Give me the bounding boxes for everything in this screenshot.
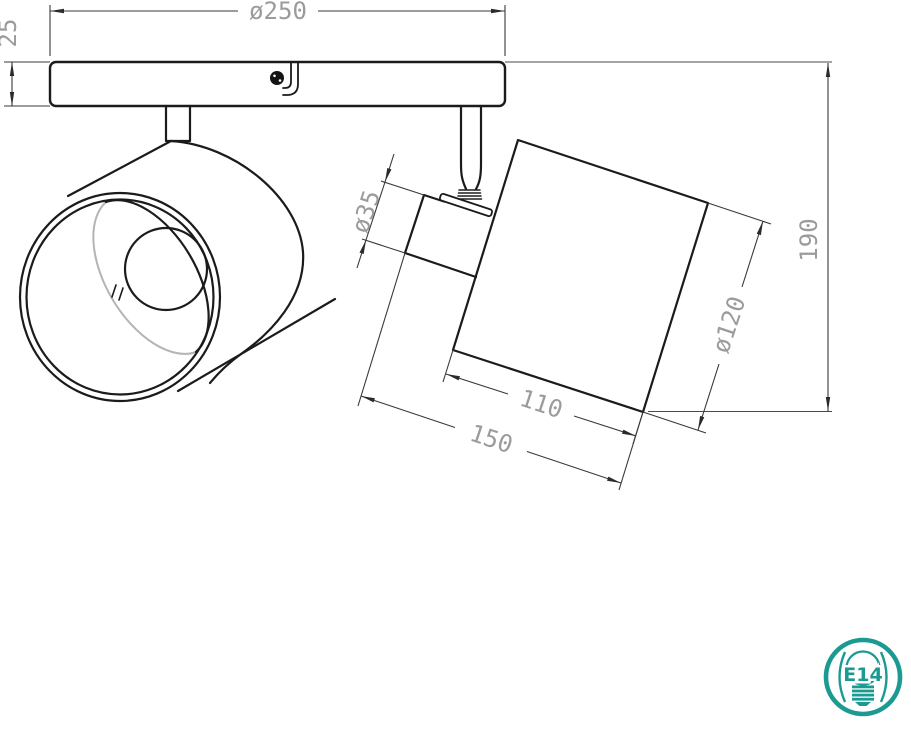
- dim-label-shade-length: 110: [516, 384, 566, 424]
- dim-label-neck-diameter: ø35: [346, 187, 386, 237]
- dim-label-head-length: 150: [466, 419, 516, 459]
- left-shade-top-silhouette: [68, 141, 171, 196]
- dim-plate-diameter: ø250: [50, 0, 505, 56]
- swivel-joint-ribs: [458, 190, 482, 199]
- bulb-screw-base-icon: [852, 686, 874, 707]
- dim-neck-diameter: ø35: [346, 154, 424, 268]
- badge-socket-label: E14: [843, 664, 882, 686]
- left-spot-head: [20, 106, 335, 401]
- left-stem: [166, 106, 190, 141]
- screw-highlight: [279, 79, 282, 82]
- dim-plate-thickness: 25: [0, 19, 50, 106]
- spotlight-dimension-drawing: ø250 25 190 ø35 ø120: [0, 0, 911, 729]
- dim-label-shade-diameter: ø120: [707, 293, 752, 357]
- right-spot-head: [405, 106, 708, 412]
- screw-highlight: [273, 75, 276, 78]
- dim-label-plate-thickness: 25: [0, 19, 22, 48]
- technical-drawing-page: ø250 25 190 ø35 ø120: [0, 0, 911, 729]
- dim-label-overall-height: 190: [795, 218, 823, 261]
- e14-socket-badge: E14: [826, 640, 900, 714]
- right-shade-body: [453, 140, 708, 412]
- ceiling-plate-group: [50, 62, 832, 106]
- dim-label-plate-diameter: ø250: [249, 0, 307, 25]
- right-stem: [461, 106, 481, 189]
- mounting-screw: [270, 71, 284, 85]
